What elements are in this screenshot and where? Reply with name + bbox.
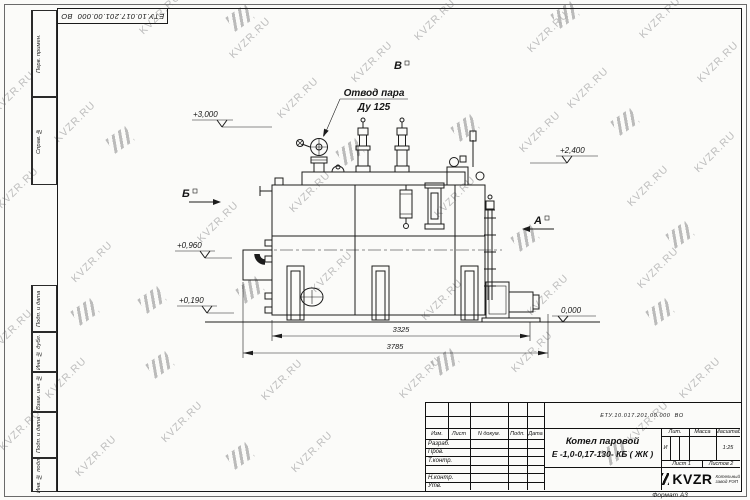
lit-value: И xyxy=(661,436,670,460)
view-arrow-b: Б xyxy=(182,188,221,205)
steam-outlet-callout: Отвод пара Ду 125 xyxy=(323,88,408,137)
col-ndocum: N докум. xyxy=(470,428,508,439)
listov-cell: Листов 2 xyxy=(702,460,740,467)
view-label: В xyxy=(394,60,402,72)
support-leg xyxy=(461,266,478,320)
elevation-mark-3000: +3,000 xyxy=(192,110,272,127)
row-prov: Пров. xyxy=(426,448,470,456)
view-label: А xyxy=(533,215,542,227)
steam-stop-valve xyxy=(297,139,328,173)
product-name-line1: Котел паровой xyxy=(566,436,639,447)
elevation-mark-0190: +0,190 xyxy=(177,296,234,313)
support-leg xyxy=(372,266,389,320)
dimension-3325: 3325 xyxy=(272,320,530,341)
safety-valve xyxy=(356,118,370,172)
top-docnumber-text: ЕТУ.10.017.201.00.000 ВО xyxy=(61,12,164,21)
row-razrab: Разраб. xyxy=(426,439,470,448)
drawing-sheet: KVZR.RUKVZR.RUKVZR.RUKVZR.RUKVZR.RUKVZR.… xyxy=(0,0,750,500)
view-label: Б xyxy=(182,188,190,200)
safety-valve xyxy=(395,118,409,172)
massa-label: Масса xyxy=(689,428,716,436)
drum-dome xyxy=(332,165,344,172)
water-level-gauge xyxy=(400,185,412,229)
blower-fan xyxy=(482,282,540,322)
elevation-mark-0960: +0,960 xyxy=(175,241,232,258)
view-arrow-v: В xyxy=(394,60,409,72)
elevation-label: +3,000 xyxy=(193,110,218,119)
kvzr-logo-sub2: завод РЭП xyxy=(716,479,740,484)
elevation-mark-0000: 0,000 xyxy=(552,306,596,322)
burner-box xyxy=(243,250,272,280)
kvzr-logo-text: KVZR xyxy=(672,471,712,487)
masshtab-label: Масштаб xyxy=(716,428,740,436)
row-nkontr: Н.контр. xyxy=(426,473,470,482)
company-logo: KVZR Котельный завод РЭП xyxy=(661,467,740,490)
view-arrow-a: А xyxy=(522,215,554,232)
row-utv: Утв. xyxy=(426,482,470,490)
dimension-label: 3785 xyxy=(387,342,405,351)
elevation-mark-2400: +2,400 xyxy=(530,146,598,163)
water-level-column xyxy=(425,183,444,229)
elevation-label: +0,960 xyxy=(177,241,202,250)
col-list: Лист xyxy=(448,428,470,439)
dimension-label: 3325 xyxy=(393,325,411,334)
list-cell: Лист 1 xyxy=(661,460,702,467)
masshtab-value: 1:25 xyxy=(716,436,740,460)
lit-label: Лит. xyxy=(661,428,689,436)
col-podp: Подп. xyxy=(508,428,527,439)
kvzr-logo-icon xyxy=(661,473,669,485)
callout-line1: Отвод пара xyxy=(344,88,405,99)
elevation-label: 0,000 xyxy=(561,306,582,315)
col-izm: Изм. xyxy=(426,428,448,439)
title-doc-number: ЕТУ.10.017.201.00.000 ВО xyxy=(544,403,740,428)
callout-line2: Ду 125 xyxy=(357,102,391,113)
row-tkontr: Т.контр. xyxy=(426,456,470,465)
title-block: ЕТУ.10.017.201.00.000 ВО Изм. Лист N док… xyxy=(425,402,742,492)
elevation-label: +0,190 xyxy=(179,296,204,305)
elevation-label: +2,400 xyxy=(560,146,585,155)
product-name-line2: Е -1,0-0,17-130- КБ ( ЖК ) xyxy=(552,449,653,459)
support-leg xyxy=(287,266,304,320)
col-data: Дата xyxy=(527,428,544,439)
format-label: Формат А3 xyxy=(600,492,740,499)
product-name: Котел паровой Е -1,0-0,17-130- КБ ( ЖК ) xyxy=(544,428,661,467)
top-docnumber-stamp: ЕТУ.10.017.201.00.000 ВО xyxy=(57,8,168,24)
